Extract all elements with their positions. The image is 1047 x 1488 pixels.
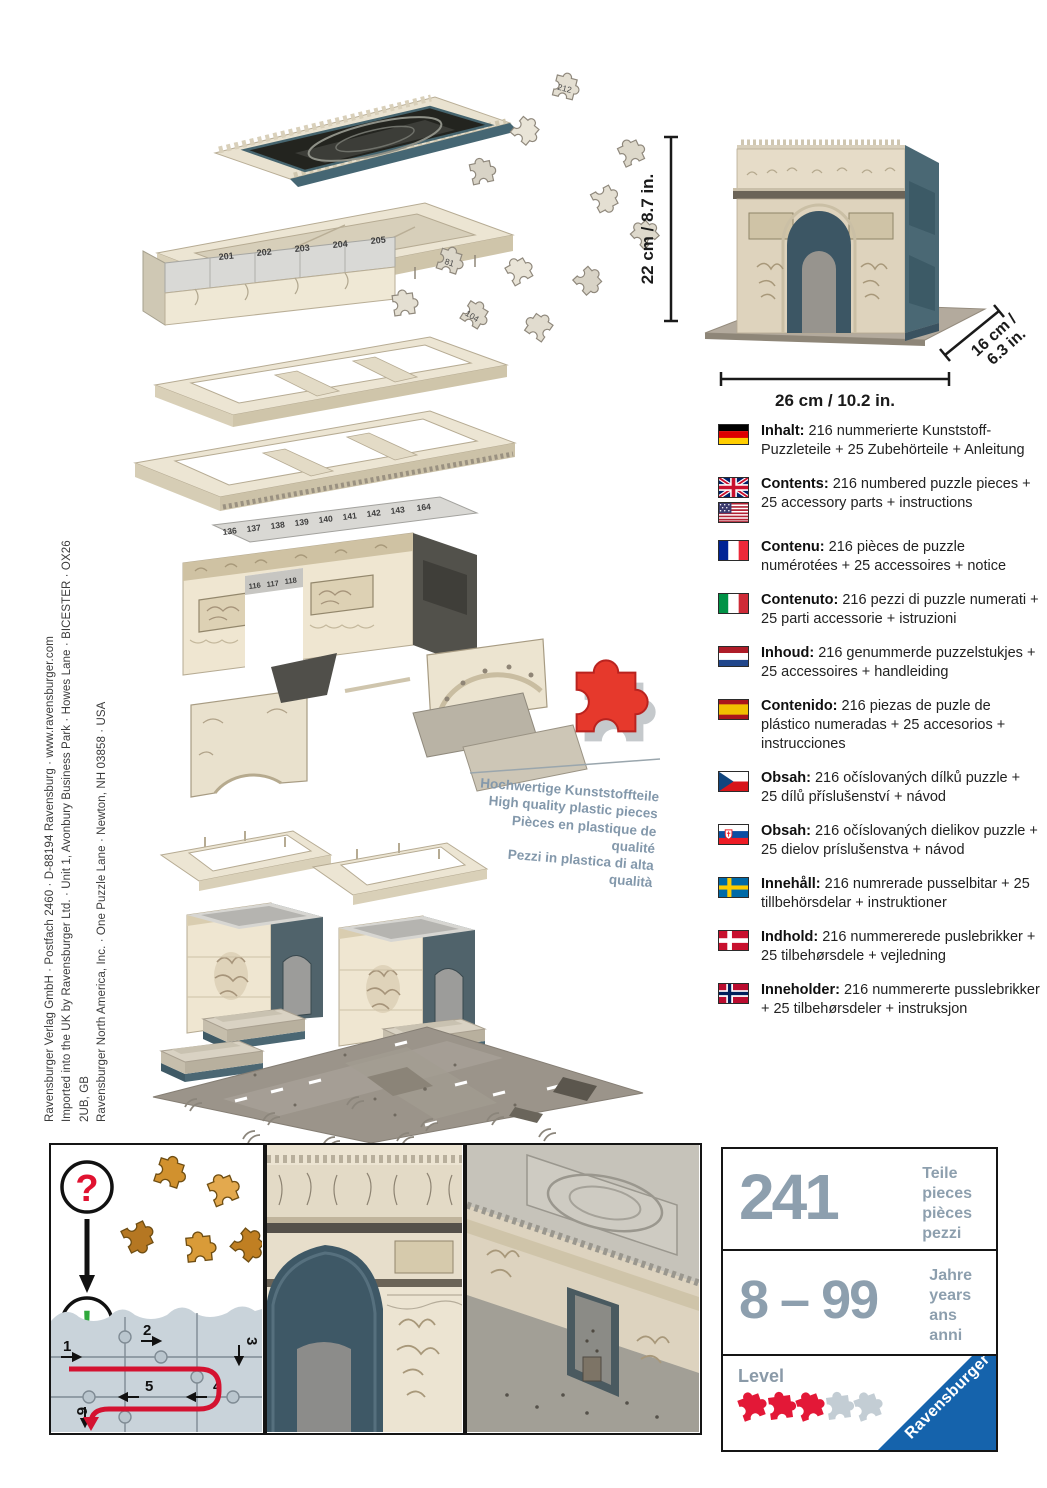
contents-label: Innehåll: (761, 876, 821, 892)
svg-text:205: 205 (370, 234, 386, 246)
quality-note: Hochwertige Kunststoffteile High quality… (466, 774, 660, 892)
contents-entry-fr: Contenu: 216 pièces de puzzle numérotées… (718, 538, 1040, 576)
flag-uk-icon (718, 477, 749, 498)
svg-text:140: 140 (318, 513, 334, 525)
svg-text:202: 202 (256, 246, 272, 258)
svg-text:143: 143 (390, 504, 406, 516)
age-range-row: 8 – 99 Jahre years ans anni (723, 1249, 996, 1354)
box-back: Ravensburger Verlag GmbH · Postfach 2460… (0, 0, 1047, 1488)
flag-spain-icon (718, 699, 749, 720)
svg-text:201: 201 (218, 250, 234, 262)
flag-usa-icon (718, 502, 749, 523)
svg-text:6: 6 (73, 1407, 90, 1415)
flag-netherlands-icon (718, 646, 749, 667)
contents-entry-es: Contenido: 216 piezas de puzle de plásti… (718, 697, 1040, 754)
svg-text:118: 118 (284, 576, 297, 586)
contents-label: Inneholder: (761, 982, 840, 998)
height-dimension: 22 cm / 8.7 in. (638, 137, 678, 321)
flag-germany-icon (718, 424, 749, 445)
contents-entry-no: Inneholder: 216 nummererte pusslebrikker… (718, 981, 1040, 1019)
roof-layer (215, 97, 518, 187)
svg-text:5: 5 (145, 1378, 153, 1395)
svg-text:204: 204 (332, 238, 348, 250)
flag-czech-republic-icon (718, 771, 749, 792)
level-row: Level Ravensburger (723, 1354, 996, 1450)
piece-count-labels: Teile pieces pièces pezzi (922, 1149, 972, 1249)
contents-label: Contenuto: (761, 592, 838, 608)
level-piece-empty-icon (849, 1389, 886, 1426)
photo-arch-aerial (465, 1143, 702, 1435)
contents-entry-se: Innehåll: 216 numrerade pusselbitar + 25… (718, 875, 1040, 913)
colophon-line-2: Imported into the UK by Ravensburger Ltd… (59, 522, 94, 1122)
svg-text:26 cm / 10.2 in.: 26 cm / 10.2 in. (775, 391, 895, 410)
square-frames-layer (161, 831, 487, 905)
contents-label: Contenido: (761, 698, 838, 714)
assembly-order-grid: 1 2 3 4 5 6 (51, 1306, 262, 1432)
red-puzzle-piece-icon (577, 660, 656, 741)
svg-text:2: 2 (143, 1322, 151, 1339)
finished-model-dimensions: 22 cm / 8.7 in. 26 cm / 10.2 in. 16 cm /… (637, 85, 1047, 420)
contents-entry-sk: Obsah: 216 očíslovaných dielikov puzzle … (718, 822, 1040, 860)
info-box: 241 Teile pieces pièces pezzi 8 – 99 Jah… (721, 1147, 998, 1452)
piece-count-row: 241 Teile pieces pièces pezzi (723, 1149, 996, 1249)
contents-label: Indhold: (761, 929, 818, 945)
exploded-assembly-diagram: 201 202 203 204 205 212 81 104 (95, 55, 665, 1145)
frame-layer-2 (135, 411, 515, 511)
contents-label: Obsah: (761, 770, 811, 786)
svg-text:137: 137 (246, 522, 262, 534)
age-range-labels: Jahre years ans anni (929, 1251, 972, 1354)
contents-entry-en: Contents: 216 numbered puzzle pieces + 2… (718, 475, 1040, 523)
svg-text:22 cm / 8.7 in.: 22 cm / 8.7 in. (638, 174, 657, 285)
piece-count: 241 (723, 1149, 837, 1249)
svg-text:141: 141 (342, 510, 358, 522)
contents-label: Inhalt: (761, 423, 805, 439)
contents-entry-dk: Indhold: 216 nummererede puslebrikker + … (718, 928, 1040, 966)
frame-layer-1 (155, 337, 507, 427)
contents-entry-it: Contenuto: 216 pezzi di puzzle numerati … (718, 591, 1040, 629)
howto-panel: ? ! (49, 1143, 265, 1435)
photo-arch-closeup (265, 1143, 465, 1435)
svg-text:136: 136 (222, 525, 238, 537)
svg-text:138: 138 (270, 519, 286, 531)
flag-italy-icon (718, 593, 749, 614)
contents-entry-nl: Inhoud: 216 genummerde puzzelstukjes + 2… (718, 644, 1040, 682)
loose-pieces-photo (121, 1153, 262, 1265)
attic-box-layer: 136 137 138 139 140 141 142 143 164 116 … (183, 497, 477, 675)
svg-text:139: 139 (294, 516, 310, 528)
svg-text:3: 3 (243, 1337, 260, 1345)
svg-text:1: 1 (63, 1338, 71, 1355)
down-arrow-icon (79, 1219, 95, 1293)
contents-entry-cz: Obsah: 216 očíslovaných dílků puzzle + 2… (718, 769, 1040, 807)
arc-de-triomphe-model (733, 143, 939, 341)
contents-label: Obsah: (761, 823, 811, 839)
flag-slovakia-icon (718, 824, 749, 845)
flag-norway-icon (718, 983, 749, 1004)
svg-text:203: 203 (294, 242, 310, 254)
contents-list: Inhalt: 216 nummerierte Kunststoff-Puzzl… (718, 422, 1040, 1034)
svg-text:116: 116 (248, 581, 261, 591)
width-dimension: 26 cm / 10.2 in. (721, 372, 949, 410)
svg-text:164: 164 (416, 501, 432, 513)
contents-label: Contenu: (761, 539, 825, 555)
svg-text:142: 142 (366, 507, 382, 519)
svg-text:117: 117 (266, 579, 279, 589)
flag-denmark-icon (718, 930, 749, 951)
flag-france-icon (718, 540, 749, 561)
contents-label: Contents: (761, 476, 829, 492)
contents-entry-de: Inhalt: 216 nummerierte Kunststoff-Puzzl… (718, 422, 1040, 460)
colophon-line-1: Ravensburger Verlag GmbH · Postfach 2460… (42, 522, 59, 1122)
flag-sweden-icon (718, 877, 749, 898)
age-range: 8 – 99 (723, 1251, 877, 1354)
contents-label: Inhoud: (761, 645, 814, 661)
question-mark: ? (75, 1168, 98, 1210)
